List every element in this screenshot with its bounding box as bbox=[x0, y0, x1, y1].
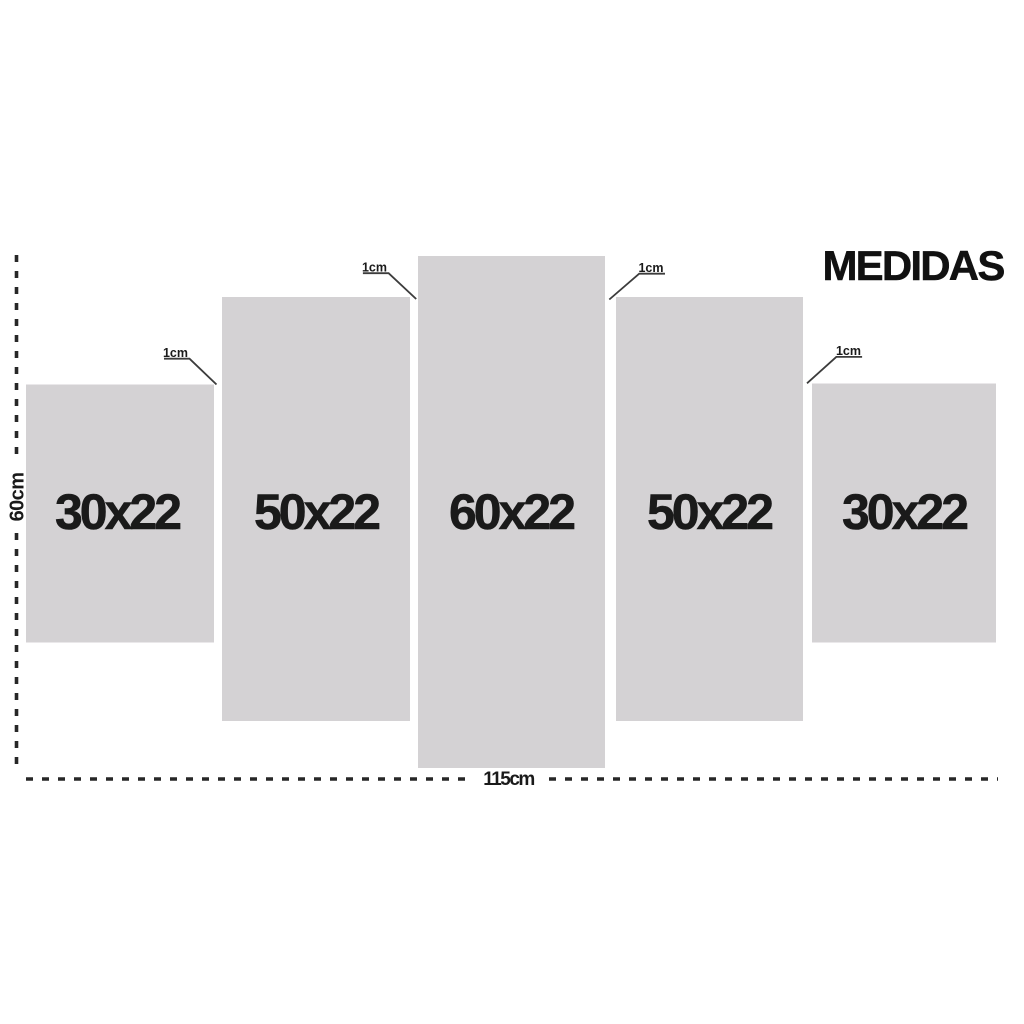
svg-text:60cm: 60cm bbox=[7, 473, 29, 522]
svg-text:50x22: 50x22 bbox=[254, 484, 379, 540]
svg-text:30x22: 30x22 bbox=[55, 484, 180, 540]
svg-text:60x22: 60x22 bbox=[449, 484, 574, 540]
svg-text:MEDIDAS: MEDIDAS bbox=[822, 242, 1004, 289]
svg-text:50x22: 50x22 bbox=[647, 484, 772, 540]
svg-text:30x22: 30x22 bbox=[842, 484, 967, 540]
svg-text:1cm: 1cm bbox=[836, 344, 861, 358]
svg-text:115cm: 115cm bbox=[483, 769, 534, 790]
